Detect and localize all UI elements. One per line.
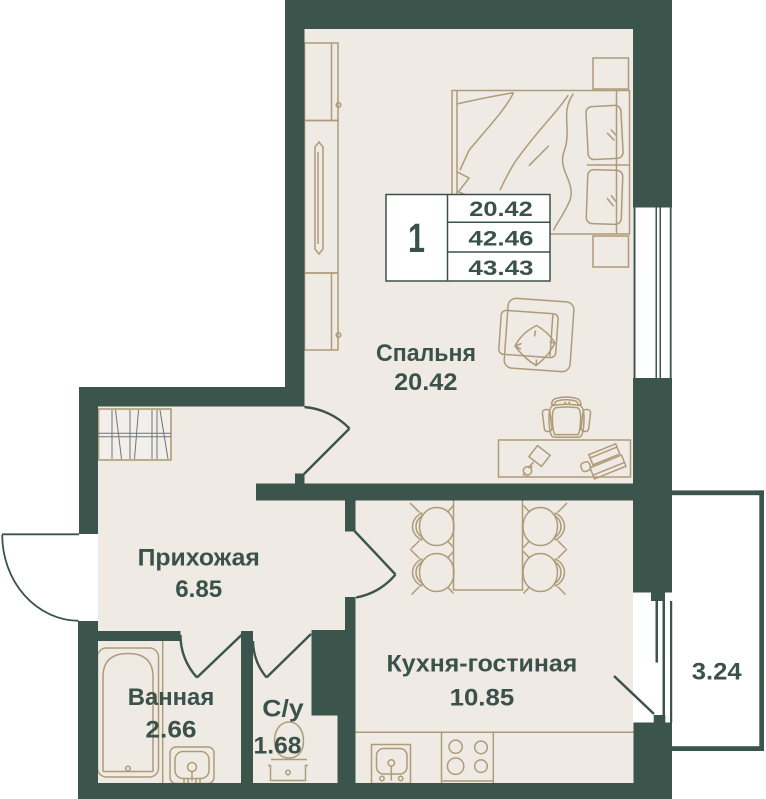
svg-text:С/у: С/у [262, 696, 304, 723]
svg-text:20.42: 20.42 [469, 197, 532, 221]
svg-text:42.46: 42.46 [468, 227, 533, 251]
svg-text:1: 1 [408, 215, 425, 261]
svg-text:20.42: 20.42 [394, 369, 457, 396]
svg-text:1.68: 1.68 [254, 733, 302, 760]
svg-text:Ванная: Ванная [128, 684, 215, 711]
svg-text:Прихожая: Прихожая [138, 545, 260, 572]
svg-text:10.85: 10.85 [450, 685, 515, 712]
svg-text:6.85: 6.85 [175, 576, 222, 603]
svg-text:43.43: 43.43 [468, 256, 533, 280]
svg-text:3.24: 3.24 [692, 659, 742, 686]
svg-text:Кухня-гостиная: Кухня-гостиная [387, 651, 578, 678]
svg-text:Спальня: Спальня [376, 340, 476, 367]
svg-text:2.66: 2.66 [145, 717, 196, 744]
